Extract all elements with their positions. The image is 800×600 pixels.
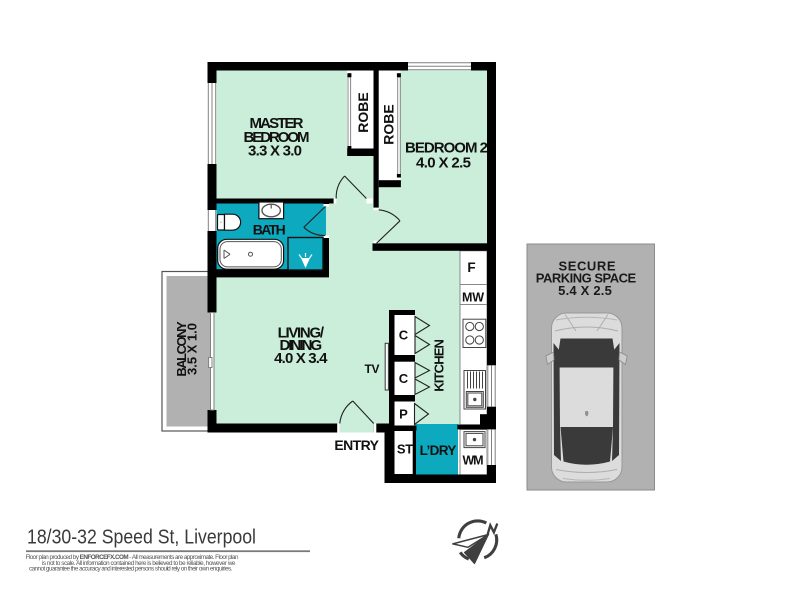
svg-text:F: F	[467, 260, 475, 275]
svg-text:3.5 X 1.0: 3.5 X 1.0	[185, 323, 200, 375]
svg-text:BATH: BATH	[253, 222, 286, 238]
svg-text:TV: TV	[365, 362, 380, 376]
svg-text:ROBE: ROBE	[355, 92, 371, 132]
svg-text:P: P	[399, 407, 408, 422]
svg-text:C: C	[399, 328, 409, 343]
svg-text:18/30-32 Speed St, Liverpool: 18/30-32 Speed St, Liverpool	[27, 526, 256, 549]
svg-text:cannot guarantee the accuracy: cannot guarantee the accuracy and intere…	[29, 566, 233, 573]
svg-text:3.3 X 3.0: 3.3 X 3.0	[248, 143, 302, 160]
svg-text:MW: MW	[462, 291, 484, 305]
svg-text:5.4 X 2.5: 5.4 X 2.5	[558, 283, 612, 298]
svg-text:ST: ST	[397, 442, 413, 457]
svg-text:ROBE: ROBE	[381, 104, 397, 144]
svg-text:L’DRY: L’DRY	[420, 443, 457, 458]
svg-text:4.0 X 3.4: 4.0 X 3.4	[274, 350, 328, 367]
svg-text:4.0 X 2.5: 4.0 X 2.5	[416, 155, 471, 172]
svg-text:C: C	[399, 371, 409, 386]
svg-text:ENTRY: ENTRY	[334, 437, 379, 453]
svg-text:KITCHEN: KITCHEN	[432, 339, 447, 392]
svg-text:WM: WM	[463, 454, 484, 468]
